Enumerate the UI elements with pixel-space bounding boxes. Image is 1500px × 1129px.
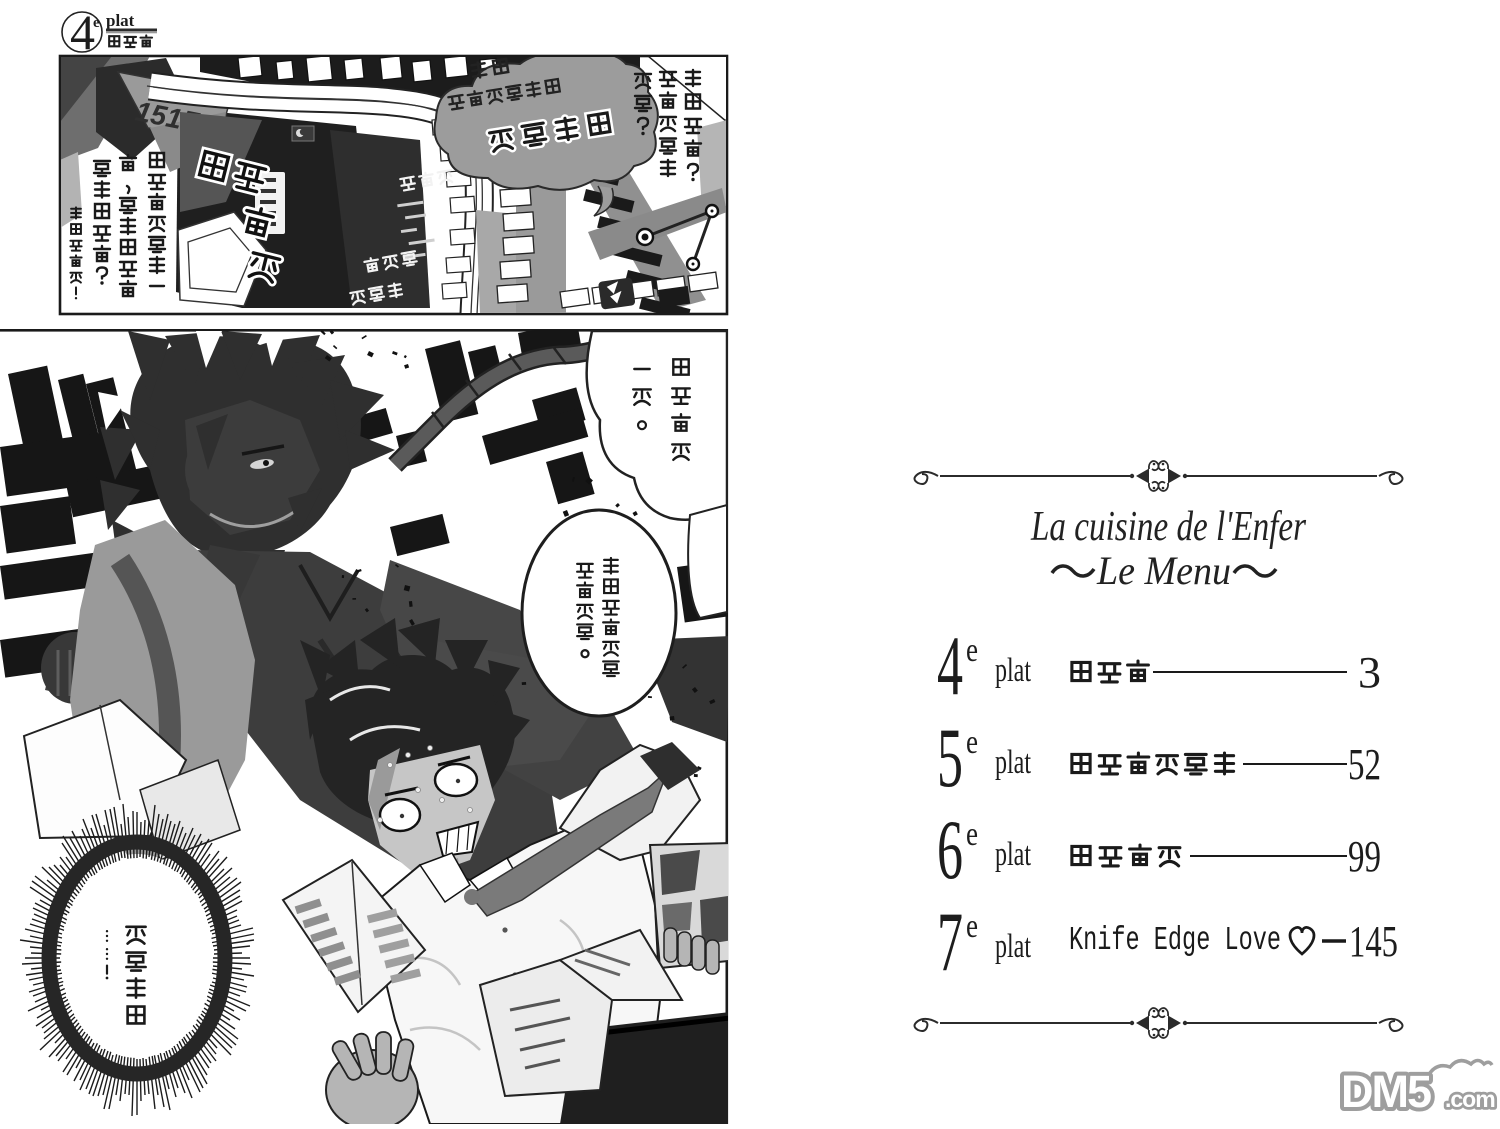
svg-text:Knife Edge Love: Knife Edge Love — [1069, 922, 1281, 959]
svg-text:plat: plat — [995, 836, 1031, 873]
svg-text:plat: plat — [995, 744, 1031, 781]
svg-text:plat: plat — [106, 11, 135, 30]
svg-text:La cuisine de l'Enfer: La cuisine de l'Enfer — [1030, 504, 1306, 550]
svg-text:52: 52 — [1348, 740, 1381, 789]
svg-text:6: 6 — [937, 803, 963, 897]
svg-text:plat: plat — [995, 652, 1031, 689]
svg-text:3: 3 — [1358, 648, 1381, 697]
svg-text:e: e — [966, 908, 978, 945]
svg-text:4: 4 — [70, 4, 95, 60]
svg-text:plat: plat — [995, 928, 1031, 965]
svg-text:DM5: DM5 — [1341, 1066, 1431, 1117]
svg-text:4: 4 — [937, 619, 963, 713]
svg-text:Le Menu: Le Menu — [1096, 548, 1231, 593]
svg-text:99: 99 — [1348, 832, 1381, 881]
svg-text:e: e — [966, 632, 978, 669]
svg-text:e: e — [966, 724, 978, 761]
svg-text:e: e — [966, 816, 978, 853]
svg-text:7: 7 — [937, 895, 963, 989]
svg-text:e: e — [93, 15, 100, 31]
svg-text:5: 5 — [937, 711, 963, 805]
svg-text:145: 145 — [1349, 917, 1398, 966]
svg-text:.com: .com — [1445, 1086, 1495, 1112]
